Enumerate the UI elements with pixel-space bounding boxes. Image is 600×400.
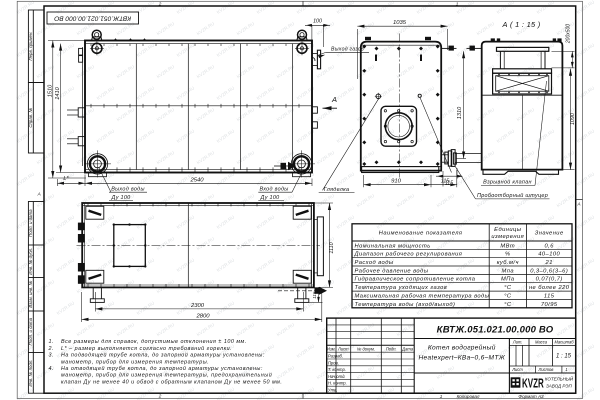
svg-text:910: 910 xyxy=(391,179,402,185)
svg-text:2300: 2300 xyxy=(190,303,205,309)
svg-text:Номинальная мощность: Номинальная мощность xyxy=(355,243,431,249)
svg-text:На подводящей трубе котла, до: На подводящей трубе котла, до запорной а… xyxy=(61,352,265,359)
svg-text:А ( 1 : 15 ): А ( 1 : 15 ) xyxy=(501,20,540,29)
svg-text:Инв. № подл.: Инв. № подл. xyxy=(28,359,33,386)
svg-text:1035: 1035 xyxy=(393,20,407,26)
svg-text:Лист: Лист xyxy=(337,346,349,351)
svg-text:2.: 2. xyxy=(48,346,55,352)
svg-text:А: А xyxy=(37,192,41,197)
svg-text:1110: 1110 xyxy=(329,242,335,253)
svg-text:ЗАВОД РЭП: ЗАВОД РЭП xyxy=(546,383,573,388)
svg-text:115: 115 xyxy=(544,293,555,299)
svg-text:Н. контр.: Н. контр. xyxy=(328,381,347,386)
svg-text:Взрывной клапан: Взрывной клапан xyxy=(483,179,532,186)
svg-text:°С: °С xyxy=(504,293,512,299)
svg-text:Справ. №: Справ. № xyxy=(28,107,33,127)
svg-text:21: 21 xyxy=(545,260,553,266)
svg-text:3.: 3. xyxy=(49,353,55,359)
svg-text:Выход газов: Выход газов xyxy=(331,47,364,53)
svg-text:2800: 2800 xyxy=(195,313,210,319)
svg-text:Пров.: Пров. xyxy=(328,360,339,365)
svg-text:1410: 1410 xyxy=(55,86,61,99)
svg-text:Дата: Дата xyxy=(401,346,414,351)
svg-text:Гидравлическое сопротивление к: Гидравлическое сопротивление котла xyxy=(355,277,476,283)
svg-text:2: 2 xyxy=(158,1,162,6)
svg-text:100: 100 xyxy=(313,18,322,24)
svg-text:КОТЕЛЬНЫЙ: КОТЕЛЬНЫЙ xyxy=(545,375,574,382)
svg-text:Расход воды: Расход воды xyxy=(355,260,394,266)
svg-text:№ докум.: № докум. xyxy=(357,346,375,351)
svg-text:Подп. и дата: Подп. и дата xyxy=(28,209,33,237)
svg-text:Ду 100: Ду 100 xyxy=(111,195,131,201)
svg-text:Ду 100: Ду 100 xyxy=(260,195,280,201)
svg-text:1: 1 xyxy=(440,394,443,399)
svg-text:Температура уходящих газов: Температура уходящих газов xyxy=(355,285,448,291)
svg-text:Выход воды: Выход воды xyxy=(111,187,145,193)
svg-text:0,3–0,6(3–6): 0,3–0,6(3–6) xyxy=(530,268,568,274)
svg-text:Копировал: Копировал xyxy=(457,394,480,399)
svg-text:Листов: Листов xyxy=(538,367,555,372)
svg-text:Единицы: Единицы xyxy=(494,227,522,233)
svg-text:Т. контр.: Т. контр. xyxy=(328,367,346,372)
svg-text:°С: °С xyxy=(504,302,512,308)
svg-text:Наименование показателя: Наименование показателя xyxy=(379,230,463,236)
svg-text:2540: 2540 xyxy=(189,177,204,183)
svg-text:Утв.: Утв. xyxy=(328,388,338,393)
svg-text:МВт: МВт xyxy=(500,243,515,249)
svg-text:Максимальная рабочая температу: Максимальная рабочая температура воды xyxy=(355,293,490,299)
svg-text:Температура воды (вход/выход): Температура воды (вход/выход) xyxy=(355,302,456,308)
svg-text:Инв. № дубл.: Инв. № дубл. xyxy=(28,248,33,275)
svg-text:куб.м/ч: куб.м/ч xyxy=(497,260,519,266)
svg-text:°С: °С xyxy=(504,285,512,291)
svg-text:1090: 1090 xyxy=(570,113,576,125)
svg-text:Нач.отд.: Нач.отд. xyxy=(328,374,346,379)
svg-text:измерения: измерения xyxy=(491,234,524,240)
svg-text:манометр, прибор для измерения: манометр, прибор для измерения температу… xyxy=(61,359,209,365)
svg-text:Лист: Лист xyxy=(511,367,523,372)
svg-text:КВТЖ.051.021.00.000 ВО: КВТЖ.051.021.00.000 ВО xyxy=(437,324,554,335)
svg-text:Перв. примен.: Перв. примен. xyxy=(28,31,33,60)
svg-text:Изм.: Изм. xyxy=(327,346,336,351)
svg-text:115: 115 xyxy=(312,291,317,299)
svg-text:Лит.: Лит. xyxy=(512,340,523,345)
svg-text:А: А xyxy=(576,202,580,207)
svg-text:Котел водогрейный: Котел водогрейный xyxy=(428,344,496,352)
svg-text:L*: L* xyxy=(63,176,69,182)
svg-text:1.: 1. xyxy=(49,339,55,345)
svg-text:1: 1 xyxy=(456,1,459,6)
svg-text:клапан Ду не менее 40 и обвод: клапан Ду не менее 40 и обвод с обратным… xyxy=(61,379,282,385)
svg-text:Подп.: Подп. xyxy=(386,346,397,351)
svg-text:1510: 1510 xyxy=(47,84,53,97)
svg-text:0,6: 0,6 xyxy=(545,243,555,249)
svg-text:%: % xyxy=(505,252,511,258)
svg-text:2: 2 xyxy=(158,394,162,399)
svg-text:Масса: Масса xyxy=(535,340,548,345)
svg-text:Мпа: Мпа xyxy=(502,268,515,274)
svg-text:Heatexpert–КВа–0,6–МТЖ: Heatexpert–КВа–0,6–МТЖ xyxy=(418,354,505,361)
svg-text:4.: 4. xyxy=(49,366,55,372)
svg-text:Значение: Значение xyxy=(535,230,564,236)
svg-text:1310: 1310 xyxy=(457,106,463,119)
svg-text:Диапазон рабочего регулировани: Диапазон рабочего регулирования xyxy=(354,252,463,258)
svg-text:1 : 15: 1 : 15 xyxy=(556,354,572,360)
svg-text:Формат А3: Формат А3 xyxy=(518,394,544,399)
svg-text:200х500: 200х500 xyxy=(565,24,571,44)
svg-text:не более 220: не более 220 xyxy=(529,285,570,291)
svg-text:Гляделка: Гляделка xyxy=(324,187,350,193)
svg-text:Все размеры для справок, допус: Все размеры для справок, допустимые откл… xyxy=(61,339,247,345)
svg-text:115: 115 xyxy=(445,180,453,186)
svg-text:А: А xyxy=(331,95,337,104)
svg-text:1: 1 xyxy=(565,367,567,372)
svg-text:манометр, прибор для измерения: манометр, прибор для измерения температу… xyxy=(61,372,272,379)
svg-text:Пробоотборный штуцер: Пробоотборный штуцер xyxy=(477,192,548,199)
svg-text:KVZR: KVZR xyxy=(522,377,544,391)
svg-text:Рабочее давление воды: Рабочее давление воды xyxy=(355,268,429,274)
svg-text:Подп. и дата: Подп. и дата xyxy=(28,317,33,345)
svg-text:40–100: 40–100 xyxy=(538,252,560,258)
svg-text:L* – размер выполняется соглас: L* – размер выполняется согласно требова… xyxy=(61,345,232,352)
svg-text:Вход воды: Вход воды xyxy=(259,187,288,193)
svg-text:МПа: МПа xyxy=(501,277,515,283)
svg-text:70/95: 70/95 xyxy=(541,302,558,308)
svg-text:Масштаб: Масштаб xyxy=(554,340,574,345)
svg-text:0,07(0,7): 0,07(0,7) xyxy=(536,277,563,283)
svg-text:Разраб.: Разраб. xyxy=(328,354,343,359)
svg-text:КВТЖ.051.021.00.000 ВО: КВТЖ.051.021.00.000 ВО xyxy=(54,14,131,21)
svg-text:Взам. инв. №: Взам. инв. № xyxy=(28,280,33,307)
svg-text:На отводящей трубе котла, до з: На отводящей трубе котла, до запорной ар… xyxy=(61,365,263,372)
